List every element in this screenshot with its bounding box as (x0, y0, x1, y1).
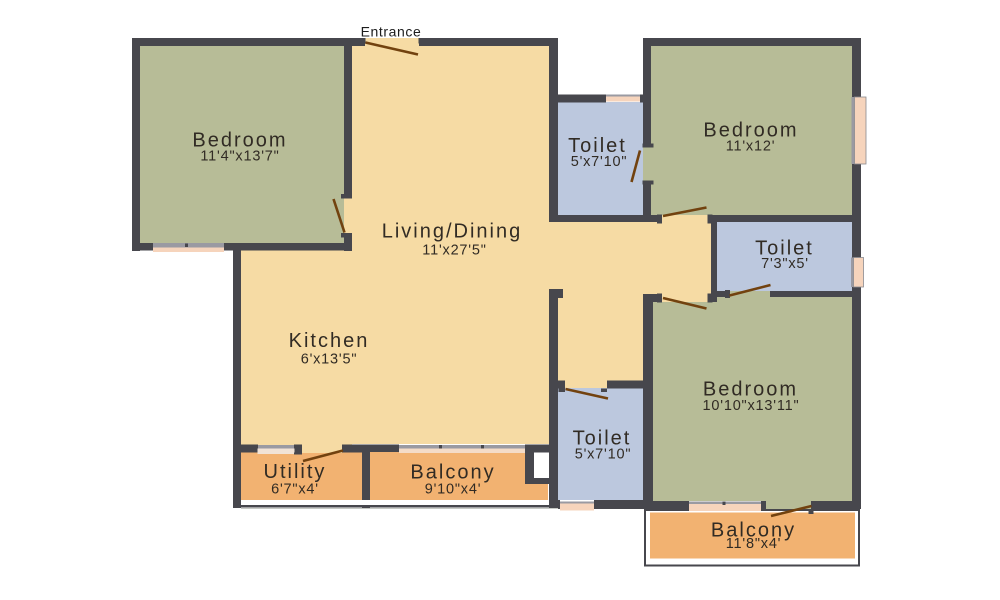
svg-text:10'10"x13'11": 10'10"x13'11" (703, 398, 800, 414)
svg-text:6'x13'5": 6'x13'5" (301, 352, 358, 368)
svg-text:Living/Dining: Living/Dining (382, 221, 523, 243)
svg-text:11'x12': 11'x12' (726, 139, 776, 155)
svg-text:5'x7'10": 5'x7'10" (571, 154, 628, 170)
svg-text:11'x27'5": 11'x27'5" (422, 243, 486, 259)
svg-text:Kitchen: Kitchen (289, 330, 370, 352)
svg-text:Entrance: Entrance (361, 24, 422, 40)
svg-text:9'10"x4': 9'10"x4' (425, 482, 482, 498)
svg-text:Utility: Utility (264, 461, 327, 483)
svg-text:Balcony: Balcony (410, 462, 495, 484)
svg-text:6'7"x4': 6'7"x4' (271, 482, 319, 498)
svg-text:7'3"x5': 7'3"x5' (761, 256, 809, 272)
svg-text:11'4"x13'7": 11'4"x13'7" (200, 149, 279, 165)
svg-text:11'8"x4': 11'8"x4' (726, 536, 782, 552)
svg-text:5'x7'10": 5'x7'10" (575, 447, 632, 463)
